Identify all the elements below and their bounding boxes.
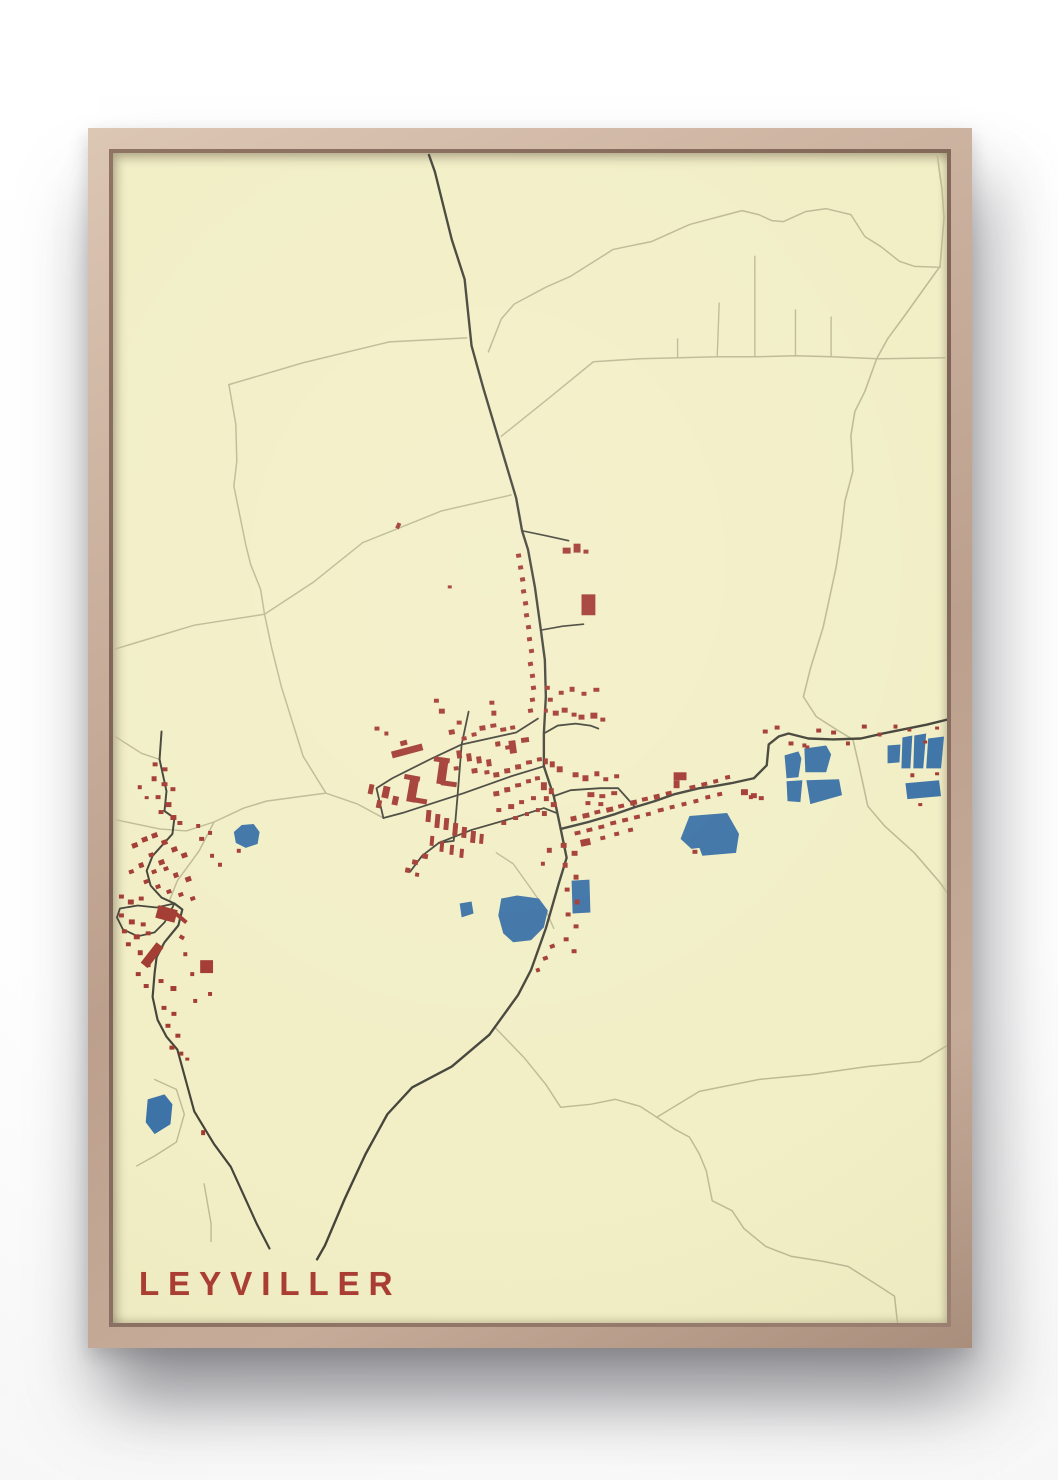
building <box>541 862 545 866</box>
building <box>579 715 585 720</box>
pond <box>785 751 802 778</box>
building <box>586 827 593 832</box>
building <box>170 787 175 791</box>
pond <box>498 896 548 943</box>
building <box>713 779 719 784</box>
building <box>156 795 161 799</box>
building <box>622 817 629 822</box>
building <box>594 771 599 776</box>
building <box>119 913 124 917</box>
building <box>598 824 605 829</box>
building <box>570 815 577 821</box>
building <box>606 806 614 812</box>
building <box>425 810 431 822</box>
building <box>193 999 197 1003</box>
building <box>594 809 601 814</box>
building <box>515 783 521 788</box>
building <box>434 699 439 703</box>
building <box>449 845 454 855</box>
building <box>544 709 548 713</box>
building <box>177 821 182 825</box>
building <box>196 824 200 828</box>
building <box>536 808 540 812</box>
building <box>580 838 591 847</box>
building <box>574 875 579 880</box>
building <box>541 782 547 790</box>
building <box>179 934 185 940</box>
building <box>562 708 568 713</box>
building <box>136 972 141 976</box>
building <box>674 772 687 780</box>
building <box>610 820 617 825</box>
building <box>183 952 187 956</box>
building <box>126 942 131 946</box>
building <box>561 843 567 848</box>
building <box>479 725 486 731</box>
building <box>170 815 176 820</box>
building <box>138 862 144 868</box>
pond <box>460 902 474 918</box>
building <box>493 772 500 778</box>
building <box>572 949 577 953</box>
building <box>374 727 379 731</box>
building <box>553 711 559 716</box>
building <box>210 854 214 858</box>
building <box>138 785 142 789</box>
building <box>572 851 578 856</box>
building <box>129 919 135 924</box>
building <box>862 725 867 729</box>
building <box>166 889 172 894</box>
building <box>504 768 511 774</box>
building <box>575 900 580 905</box>
building <box>910 773 914 777</box>
pond <box>806 779 842 804</box>
building <box>535 776 540 781</box>
building <box>146 931 151 935</box>
building <box>500 727 506 732</box>
building <box>600 835 606 840</box>
building <box>545 686 550 690</box>
building <box>208 992 212 996</box>
building <box>725 775 731 780</box>
building <box>153 762 158 766</box>
building <box>530 697 536 702</box>
building <box>466 753 472 762</box>
building <box>557 766 563 772</box>
building <box>593 688 599 692</box>
building <box>170 986 176 991</box>
building <box>490 723 496 728</box>
building <box>128 869 134 874</box>
building <box>573 772 579 777</box>
building <box>935 727 939 730</box>
building <box>459 849 464 858</box>
building <box>530 673 536 678</box>
building <box>185 1058 189 1061</box>
building <box>400 740 408 747</box>
building <box>705 795 711 800</box>
building <box>528 662 534 667</box>
building <box>526 760 532 765</box>
building <box>550 761 555 767</box>
building <box>646 812 652 817</box>
building <box>152 776 157 781</box>
building <box>935 772 939 775</box>
frame-inner-lip: LEYVILLER <box>109 149 951 1327</box>
building <box>549 788 554 794</box>
building <box>122 929 127 933</box>
building <box>457 721 462 725</box>
building <box>519 800 524 804</box>
building <box>674 780 680 788</box>
building <box>151 869 157 874</box>
major-road <box>153 904 270 1249</box>
building <box>411 797 427 805</box>
minor-road <box>501 356 945 437</box>
building <box>846 741 850 745</box>
building <box>524 613 530 618</box>
building <box>134 934 140 939</box>
building <box>158 859 165 866</box>
building <box>657 808 664 813</box>
building <box>600 718 605 722</box>
building <box>565 888 570 892</box>
building <box>692 850 697 854</box>
building <box>521 737 530 743</box>
building <box>486 759 492 767</box>
minor-road <box>229 385 265 615</box>
pond <box>905 780 941 799</box>
building <box>585 801 590 805</box>
building <box>923 740 927 743</box>
building <box>505 745 510 750</box>
building <box>144 984 149 988</box>
building <box>526 779 531 784</box>
building <box>630 799 638 805</box>
major-road <box>383 766 543 818</box>
building <box>542 811 547 816</box>
building <box>520 577 526 582</box>
building <box>907 729 911 732</box>
building <box>237 849 241 853</box>
building <box>516 553 522 558</box>
building <box>542 955 548 960</box>
building <box>583 550 588 554</box>
major-road <box>522 531 569 541</box>
building <box>185 876 192 883</box>
building <box>508 804 514 809</box>
minor-road <box>488 209 940 352</box>
building <box>141 836 148 843</box>
building <box>544 796 549 801</box>
building <box>159 979 164 983</box>
building <box>523 601 529 606</box>
building <box>529 649 535 654</box>
building <box>563 548 571 554</box>
building <box>448 585 452 588</box>
building <box>171 1012 176 1016</box>
building <box>749 795 753 799</box>
building <box>537 757 542 762</box>
building <box>141 922 146 926</box>
building <box>493 791 500 797</box>
building <box>513 816 518 820</box>
building <box>181 852 188 859</box>
minor-road <box>265 495 512 614</box>
building <box>162 1006 167 1010</box>
building <box>528 708 534 713</box>
building <box>763 730 768 734</box>
building <box>162 782 168 786</box>
building <box>693 799 699 804</box>
building <box>547 848 552 853</box>
building <box>190 972 194 976</box>
building <box>590 713 597 719</box>
building <box>163 866 169 871</box>
building <box>717 792 723 797</box>
building <box>614 831 620 836</box>
building <box>789 741 794 745</box>
building <box>611 791 617 795</box>
building <box>218 863 222 867</box>
building <box>199 837 204 841</box>
building <box>441 780 457 787</box>
building <box>531 685 537 690</box>
minor-road <box>717 303 719 357</box>
pond <box>681 813 739 856</box>
minor-road <box>115 614 265 649</box>
building <box>831 731 836 735</box>
building <box>496 808 501 812</box>
building <box>461 827 467 838</box>
building <box>384 732 388 736</box>
minor-road <box>113 735 160 760</box>
building <box>526 625 532 630</box>
building <box>200 960 213 973</box>
building <box>741 789 748 795</box>
building <box>634 814 641 819</box>
building <box>479 834 484 844</box>
building <box>471 732 477 737</box>
building <box>515 764 522 770</box>
building <box>603 777 608 781</box>
building <box>618 804 625 809</box>
building <box>559 691 564 695</box>
building <box>582 594 596 615</box>
building <box>582 812 590 818</box>
building <box>151 832 158 839</box>
minor-road <box>265 614 326 793</box>
building <box>544 758 548 764</box>
building <box>163 767 168 771</box>
building <box>141 942 164 968</box>
building <box>484 770 489 775</box>
major-road <box>317 155 567 1259</box>
building <box>551 802 557 807</box>
pond <box>926 737 944 769</box>
building <box>391 743 423 758</box>
building <box>759 796 764 800</box>
building <box>368 784 375 795</box>
building <box>381 786 390 799</box>
building <box>614 774 619 778</box>
building <box>415 872 420 877</box>
building <box>175 1034 180 1038</box>
building <box>527 637 533 642</box>
building <box>405 867 411 873</box>
building <box>439 709 445 714</box>
pond <box>787 780 803 802</box>
building <box>165 1024 170 1028</box>
building <box>470 831 476 843</box>
building <box>525 812 529 816</box>
minor-road <box>657 1117 898 1323</box>
building <box>159 810 164 814</box>
poster-frame: LEYVILLER <box>88 128 972 1348</box>
building <box>434 814 440 828</box>
building <box>145 796 149 799</box>
building <box>628 827 634 832</box>
building <box>430 836 435 846</box>
building <box>452 823 458 836</box>
building <box>461 736 467 741</box>
building <box>681 802 687 807</box>
building <box>564 937 569 941</box>
pond <box>572 880 591 914</box>
building <box>173 872 179 878</box>
building <box>155 884 161 889</box>
pond <box>804 745 831 772</box>
poster-title: LEYVILLER <box>139 1265 402 1303</box>
building <box>501 821 506 825</box>
building <box>178 892 184 897</box>
pond <box>913 734 926 769</box>
building <box>701 782 708 787</box>
building <box>566 912 571 916</box>
major-road <box>544 724 598 734</box>
pond <box>234 824 260 848</box>
map-poster: LEYVILLER <box>113 153 947 1323</box>
building <box>169 1046 174 1050</box>
minor-road <box>494 1027 656 1117</box>
building <box>476 756 482 764</box>
building <box>504 787 511 793</box>
building <box>471 768 478 774</box>
minor-road <box>326 793 383 818</box>
building <box>443 818 449 830</box>
minor-road <box>204 1184 211 1242</box>
building <box>521 589 527 594</box>
building <box>448 729 455 735</box>
building <box>598 802 603 806</box>
building <box>599 794 605 798</box>
building <box>894 725 898 729</box>
pond <box>901 736 912 769</box>
building <box>138 950 143 955</box>
minor-road <box>229 338 467 385</box>
major-road <box>541 624 584 630</box>
building <box>491 711 496 716</box>
building <box>582 775 588 781</box>
building <box>495 742 500 747</box>
town-map <box>113 153 947 1323</box>
building <box>642 797 649 802</box>
building <box>572 713 577 717</box>
building <box>574 924 579 928</box>
building <box>582 692 587 696</box>
building <box>548 698 553 702</box>
building <box>669 805 675 810</box>
building <box>434 756 450 763</box>
building <box>918 803 922 806</box>
building <box>412 859 419 865</box>
building <box>775 726 780 730</box>
building <box>570 687 575 692</box>
building <box>391 796 399 806</box>
building <box>146 962 151 967</box>
building <box>190 896 196 901</box>
building <box>179 1052 183 1056</box>
building <box>535 968 540 973</box>
building <box>574 544 581 553</box>
building <box>119 895 124 899</box>
building <box>878 733 882 737</box>
building <box>816 729 821 733</box>
minor-road <box>657 1043 947 1118</box>
building <box>131 842 138 849</box>
building <box>165 802 171 807</box>
building <box>453 766 458 771</box>
building <box>422 853 429 859</box>
building <box>201 1130 205 1135</box>
building <box>518 565 524 570</box>
building <box>128 900 134 905</box>
building <box>489 701 494 705</box>
pond <box>146 1094 173 1134</box>
building <box>139 897 144 901</box>
building <box>574 830 581 835</box>
building <box>531 796 536 800</box>
building <box>805 745 809 748</box>
building <box>510 725 515 730</box>
building <box>549 944 555 949</box>
building <box>587 792 594 797</box>
building <box>208 831 212 835</box>
pond <box>888 744 901 763</box>
building <box>563 863 568 868</box>
major-road <box>147 732 175 904</box>
building <box>171 846 178 853</box>
